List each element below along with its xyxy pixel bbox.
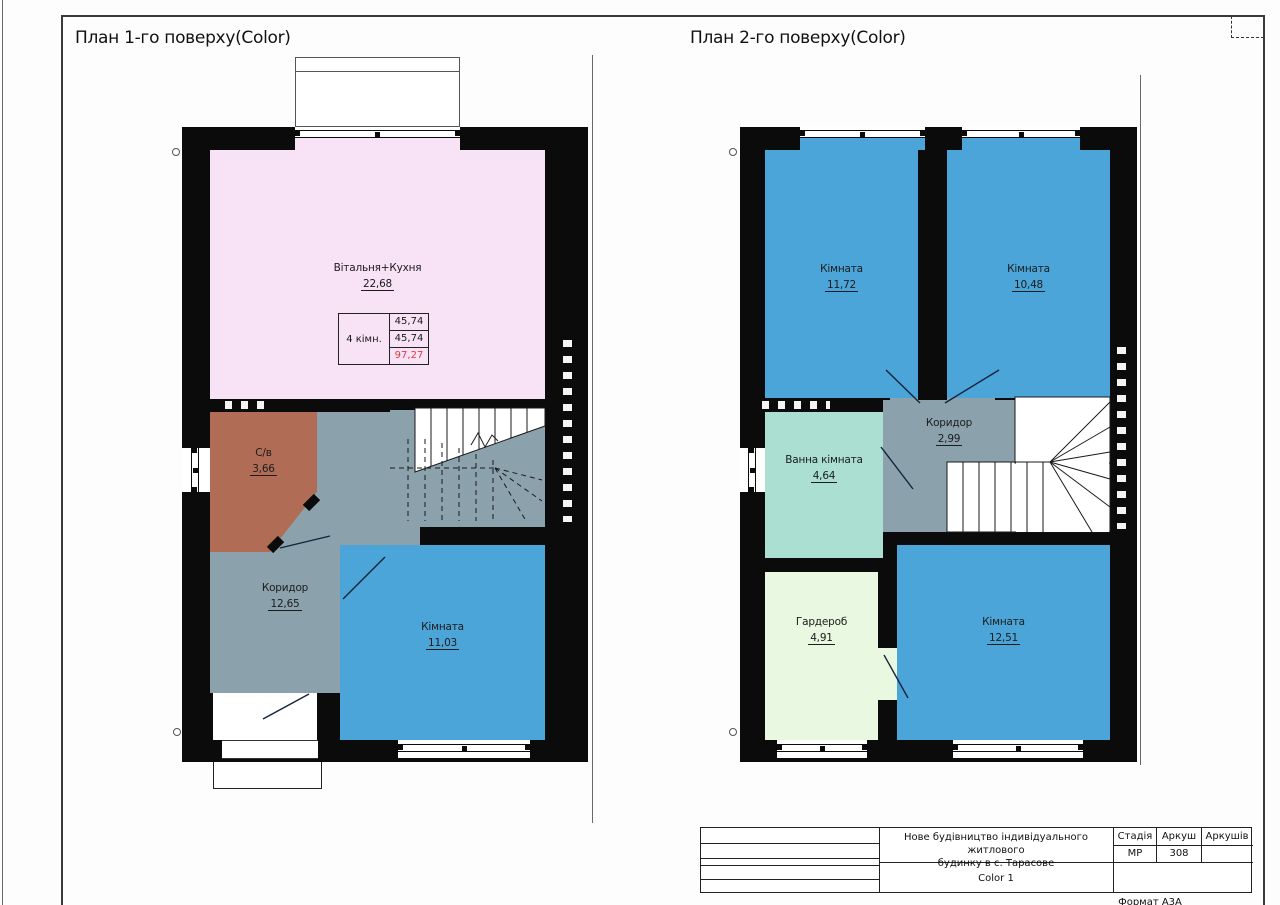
- axis-marker: [729, 728, 737, 736]
- porch-step-line: [296, 71, 459, 72]
- stage-value: МР: [1114, 847, 1156, 860]
- frame-corner-dashed-box: [1231, 16, 1264, 38]
- plan1-stairs: [182, 127, 588, 762]
- frame-right: [1263, 15, 1265, 905]
- sheets-label: Аркушів: [1202, 830, 1252, 843]
- plan1-floorplan: Вітальня+Кухня 22,68 С/в 3,66 Коридор 12…: [182, 127, 588, 762]
- doc-name: Color 1: [881, 872, 1111, 885]
- frame-top: [61, 15, 1265, 17]
- sheet-value: 308: [1157, 847, 1201, 860]
- section-line-2: [1140, 75, 1141, 765]
- plan1-title: План 1-го поверху(Color): [75, 28, 291, 48]
- axis-marker: [172, 148, 180, 156]
- plan2-stairs: [740, 127, 1137, 762]
- title-block: Нове будівництво індивідуального житлово…: [700, 827, 1252, 893]
- section-line-1: [592, 55, 593, 823]
- plan2-title: План 2-го поверху(Color): [690, 28, 906, 48]
- axis-marker: [729, 148, 737, 156]
- sheet-edge-line: [2, 0, 3, 905]
- drawing-sheet: План 1-го поверху(Color) План 2-го повер…: [0, 0, 1280, 905]
- plan1-entrance-porch: [213, 762, 322, 789]
- plan1-porch-top: [295, 57, 460, 127]
- project-name: Нове будівництво індивідуального житлово…: [881, 831, 1111, 870]
- plan2-floorplan: Кімната 11,72 Кімната 10,48 Коридор 2,99…: [740, 127, 1137, 762]
- axis-marker: [173, 728, 181, 736]
- stage-label: Стадія: [1114, 830, 1156, 843]
- sheet-label: Аркуш: [1157, 830, 1201, 843]
- frame-left: [61, 15, 63, 905]
- format-note: Формат А3А: [1085, 896, 1215, 905]
